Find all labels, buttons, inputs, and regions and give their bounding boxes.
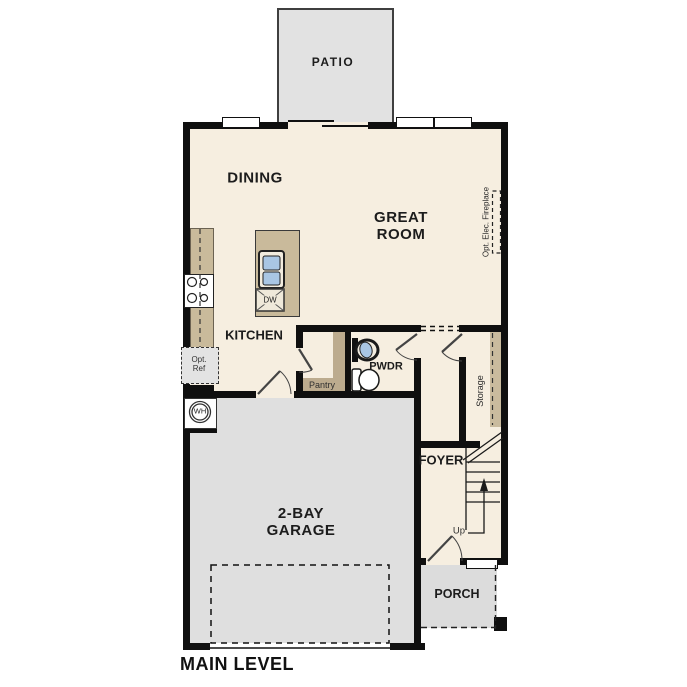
label-up: Up <box>453 527 465 538</box>
label-wh: WH <box>194 408 207 417</box>
label-great-room-line1: GREAT <box>374 209 428 226</box>
label-garage: 2-BAY GARAGE <box>267 505 336 540</box>
door-front <box>428 536 462 561</box>
cased-opening-dashes <box>421 327 459 331</box>
sliding-door <box>288 121 368 126</box>
label-dw: DW <box>262 295 277 304</box>
door-garage <box>258 371 291 394</box>
garage-door-outline <box>211 565 389 643</box>
label-great-room-line2: ROOM <box>374 226 428 243</box>
label-storage: Storage <box>475 375 485 407</box>
label-powder: PWDR <box>369 361 403 374</box>
fireplace-outline <box>493 191 501 253</box>
door-powder <box>396 334 417 360</box>
label-dining: DINING <box>227 169 283 186</box>
door-storage <box>442 334 462 361</box>
label-opt-ref-line2: Ref <box>191 364 206 373</box>
label-pantry: Pantry <box>309 380 335 390</box>
label-garage-line1: 2-BAY <box>267 505 336 522</box>
label-opt-ref: Opt. Ref <box>191 355 206 373</box>
stairs <box>463 432 503 533</box>
label-foyer: FOYER <box>419 454 464 469</box>
label-opt-fireplace: Opt. Elec. Fireplace <box>482 187 491 257</box>
door-pantry <box>299 349 312 372</box>
plan-title: MAIN LEVEL <box>180 654 294 675</box>
label-patio: PATIO <box>312 56 354 70</box>
powder-sink-icon <box>352 338 378 362</box>
plan-linework <box>0 0 687 687</box>
label-kitchen: KITCHEN <box>225 329 283 344</box>
label-great-room: GREAT ROOM <box>374 209 428 244</box>
floor-plan: PATIO DINING GREAT ROOM KITCHEN Pantry P… <box>0 0 687 687</box>
label-opt-ref-line1: Opt. <box>191 355 206 364</box>
cooktop-icon <box>188 278 208 303</box>
label-porch: PORCH <box>434 587 479 601</box>
label-garage-line2: GARAGE <box>267 522 336 539</box>
kitchen-sink-icon <box>259 251 284 288</box>
